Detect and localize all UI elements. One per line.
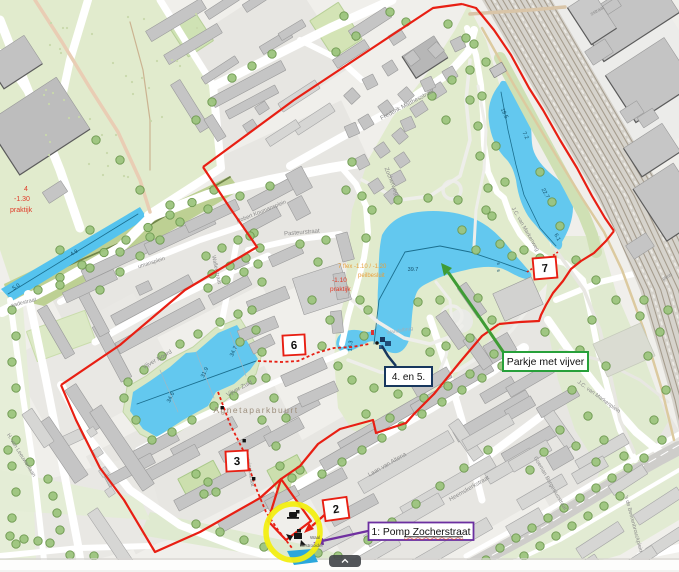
svg-text:7 flex -1.10 / -1.20: 7 flex -1.10 / -1.20 — [338, 264, 387, 270]
svg-text:praktijk: praktijk — [330, 286, 351, 293]
svg-text:-1.30: -1.30 — [14, 196, 30, 203]
svg-text:4. en 5.: 4. en 5. — [392, 372, 425, 383]
svg-text:14.3: 14.3 — [348, 340, 355, 351]
svg-text:Waal: Waal — [310, 535, 320, 540]
svg-text:peilbesluit: peilbesluit — [358, 273, 385, 279]
svg-text:praktijk: praktijk — [10, 207, 33, 214]
svg-text:1: Pomp Zocherstraat: 1: Pomp Zocherstraat — [371, 527, 470, 538]
svg-text:3: 3 — [234, 456, 241, 468]
svg-text:6: 6 — [291, 340, 298, 352]
svg-text:7: 7 — [541, 263, 548, 276]
svg-text:Bestrooider: Bestrooider — [300, 543, 324, 548]
svg-text:-1.10: -1.10 — [332, 277, 347, 284]
svg-text:Parkje met vijver: Parkje met vijver — [507, 356, 585, 368]
svg-text:4: 4 — [24, 186, 28, 193]
svg-text:39.7: 39.7 — [408, 267, 419, 273]
